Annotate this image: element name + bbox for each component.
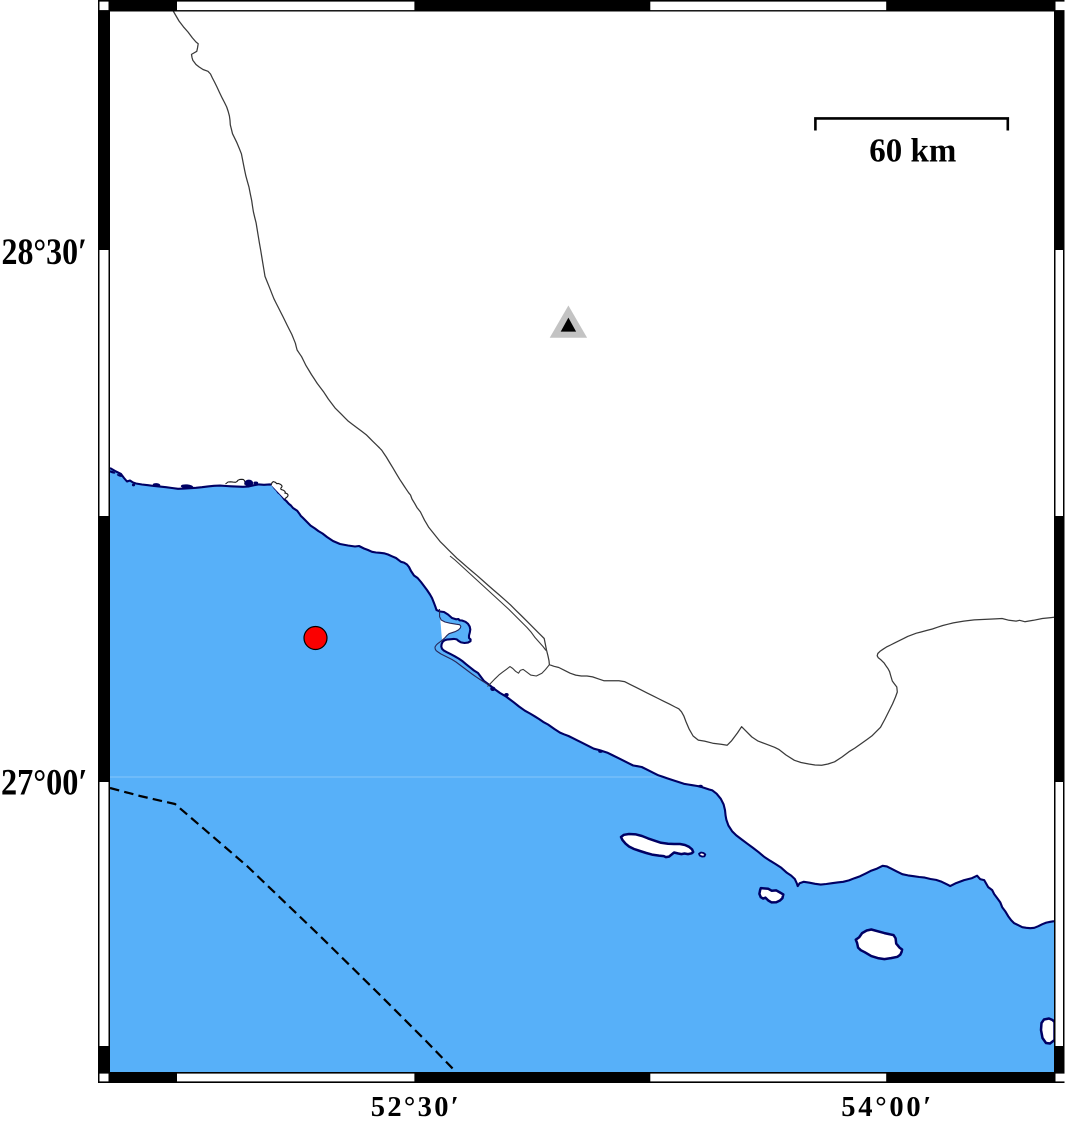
- svg-text:54°00′: 54°00′: [841, 1092, 931, 1121]
- svg-text:28°30′: 28°30′: [2, 232, 88, 273]
- svg-text:60 km: 60 km: [869, 132, 956, 169]
- svg-text:52°30′: 52°30′: [371, 1092, 459, 1121]
- svg-text:27°00′: 27°00′: [1, 763, 88, 804]
